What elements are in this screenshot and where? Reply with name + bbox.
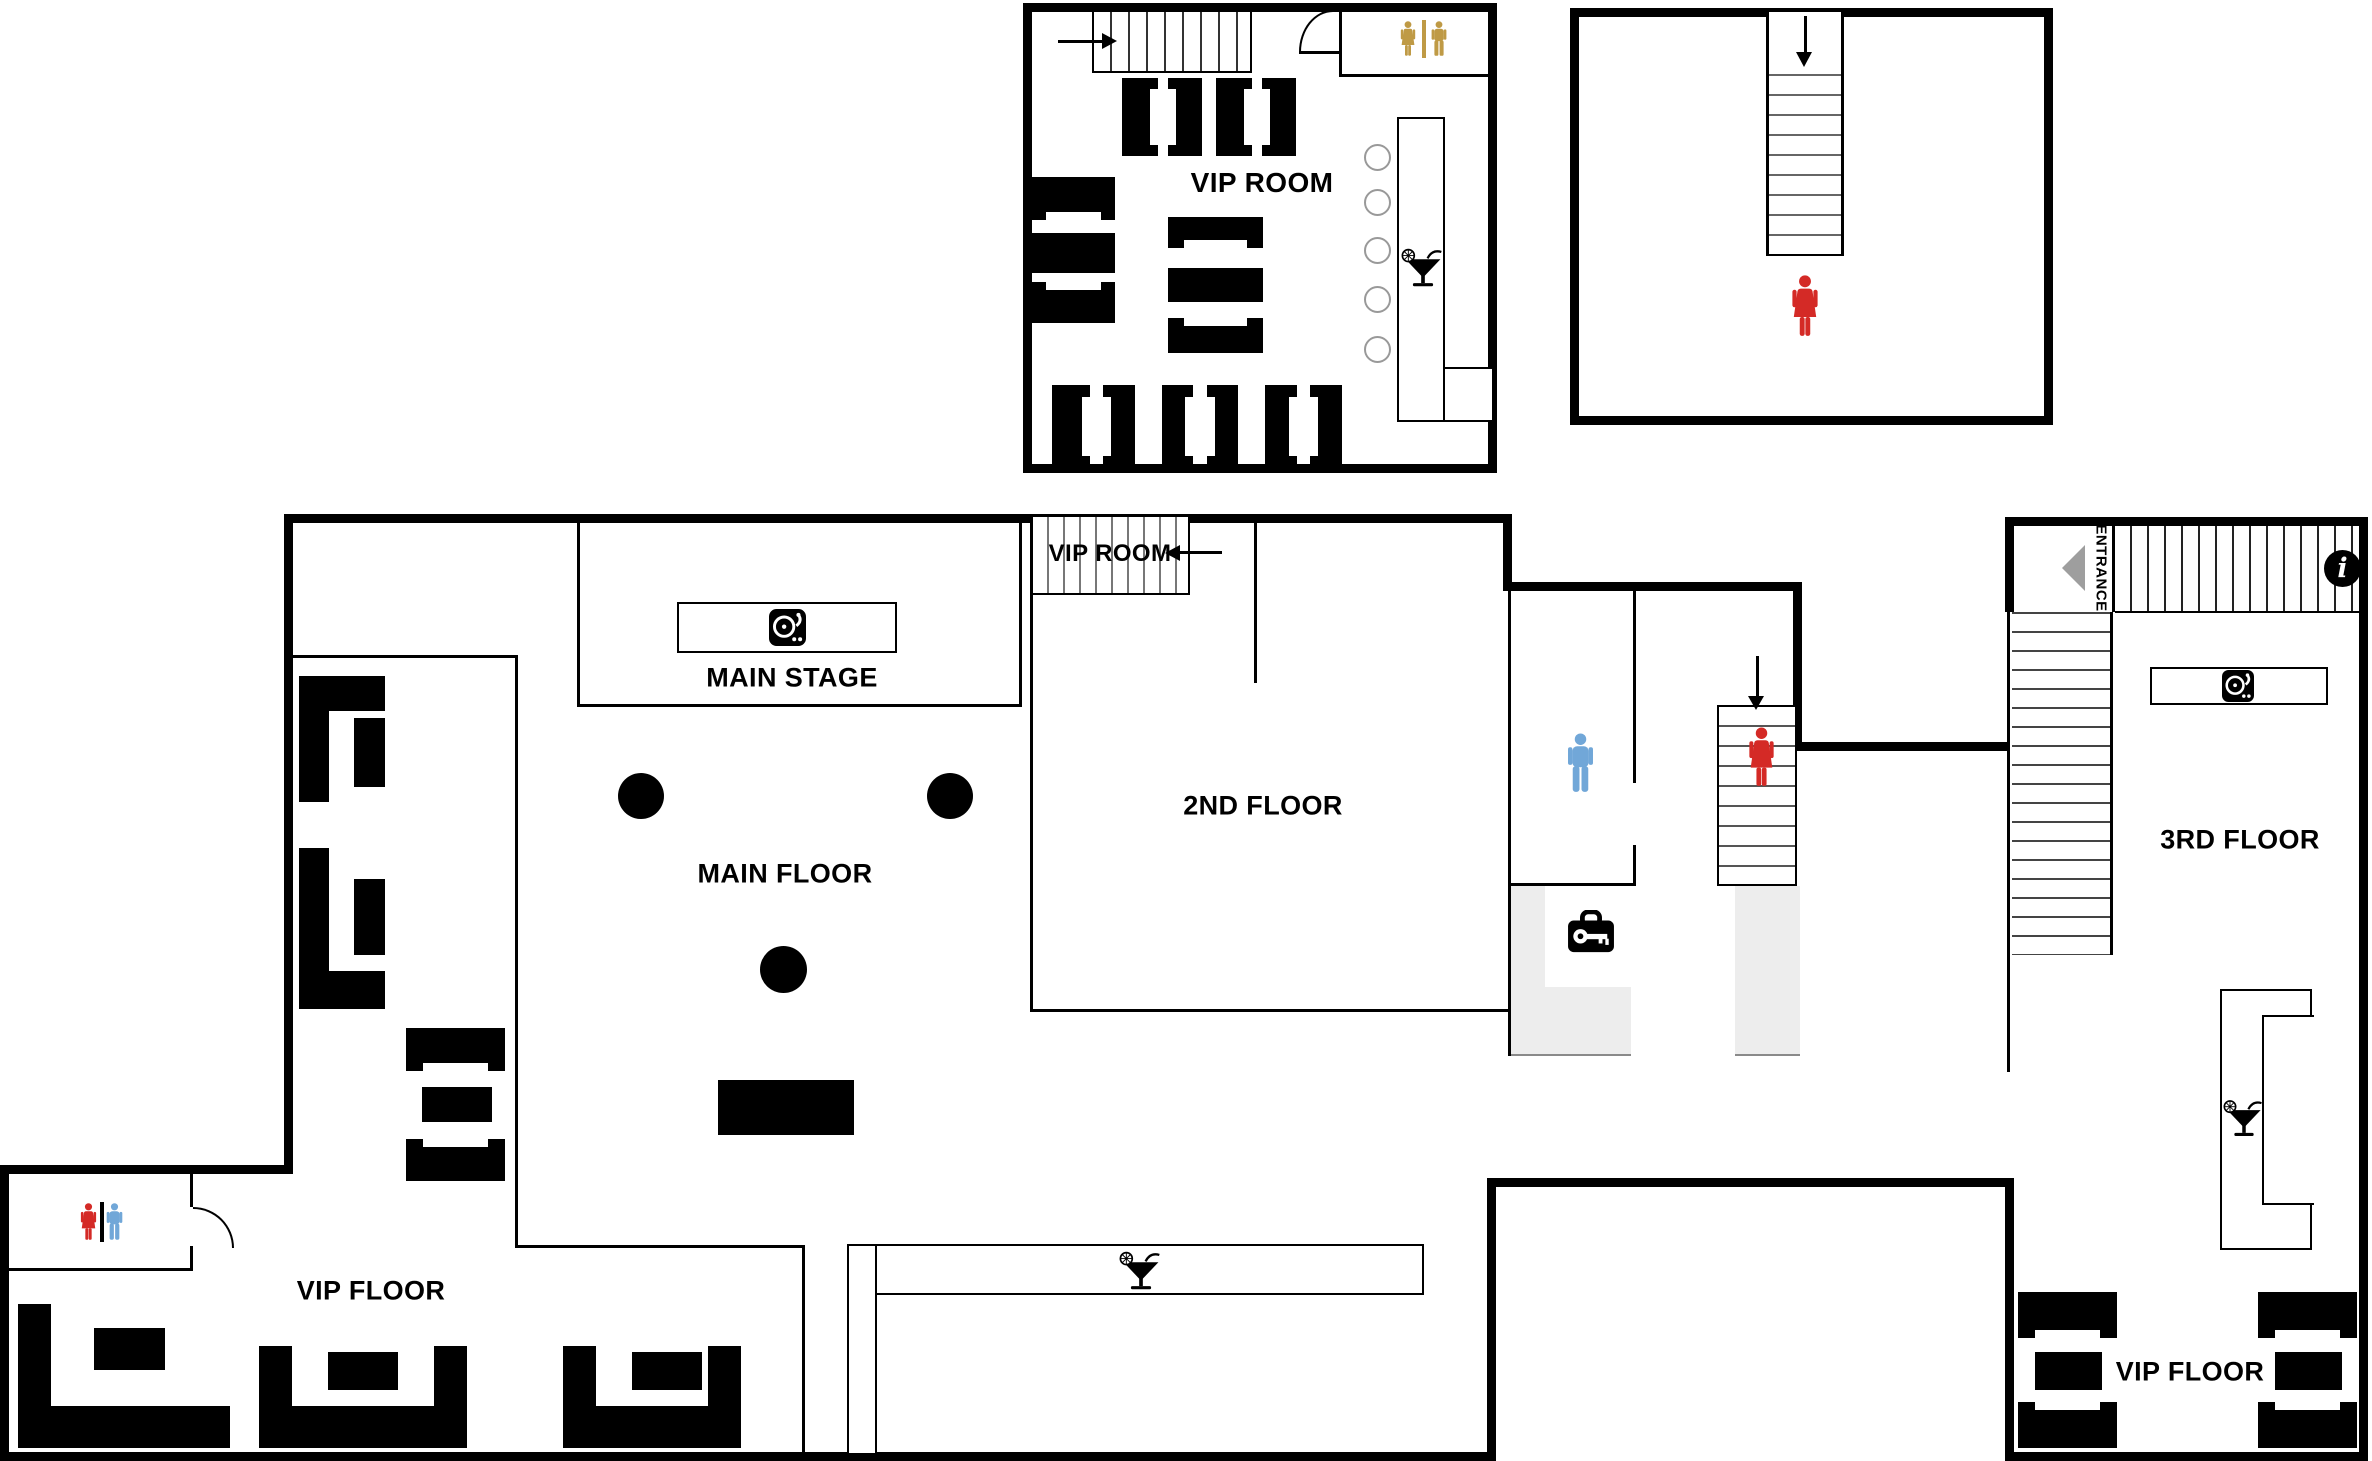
wall xyxy=(1030,1009,1511,1012)
couch xyxy=(259,1406,467,1448)
door-arc xyxy=(193,1207,234,1248)
wall xyxy=(1633,591,1636,783)
wall xyxy=(1030,523,1033,1012)
table xyxy=(354,879,385,955)
bar-counter-foot xyxy=(1443,367,1494,422)
vip-floor-left-label: VIP FLOOR xyxy=(297,1276,446,1307)
women-restroom-icon xyxy=(1748,727,1775,788)
martini-icon xyxy=(1119,1250,1163,1291)
corridor-edge xyxy=(1735,1054,1800,1056)
table xyxy=(328,1352,398,1390)
second-floor-label: 2ND FLOOR xyxy=(1183,791,1343,822)
couch xyxy=(2258,1292,2357,1338)
table xyxy=(1168,268,1263,302)
round-table xyxy=(618,773,664,819)
wall xyxy=(515,655,518,1248)
couch xyxy=(1052,385,1090,468)
corridor xyxy=(1735,886,1800,1056)
table xyxy=(2035,1352,2102,1390)
turntable-icon xyxy=(769,609,806,646)
couch xyxy=(2018,1292,2117,1338)
wall xyxy=(2007,607,2010,1072)
couch xyxy=(1262,78,1296,156)
entrance-arrow-icon xyxy=(2062,545,2085,591)
restroom-divider xyxy=(100,1202,104,1242)
table xyxy=(632,1352,702,1390)
entrance-label: ENTRANCE xyxy=(2093,524,2110,611)
bar-notch xyxy=(2262,1015,2314,1205)
couch xyxy=(1207,385,1238,468)
restroom-divider xyxy=(1422,20,1426,58)
couch xyxy=(1032,282,1115,323)
vip-room-upper-label: VIP ROOM xyxy=(1191,167,1334,199)
bar-stool xyxy=(1364,144,1391,171)
arrow-right-line xyxy=(1058,40,1104,43)
vip-floor-right-label: VIP FLOOR xyxy=(2116,1357,2265,1388)
couch xyxy=(406,1139,505,1181)
couch xyxy=(1265,385,1297,468)
wall xyxy=(8,1268,193,1271)
couch xyxy=(1032,177,1115,220)
table xyxy=(94,1328,165,1370)
couch xyxy=(1168,78,1202,156)
table xyxy=(1032,233,1115,273)
wall xyxy=(0,1452,1496,1461)
round-table xyxy=(927,773,973,819)
arrow-left-icon xyxy=(1165,545,1180,561)
wall xyxy=(1487,1178,2009,1187)
bar-stool xyxy=(1364,189,1391,216)
wall xyxy=(802,1245,805,1455)
wall xyxy=(0,1165,293,1174)
wall xyxy=(284,655,518,658)
info-icon: i xyxy=(2324,550,2361,587)
table xyxy=(2275,1352,2342,1390)
couch xyxy=(1103,385,1135,468)
couch xyxy=(1162,385,1193,468)
staircase-third-floor xyxy=(2012,612,2110,955)
wall xyxy=(1487,1178,1496,1461)
arrow-down-line xyxy=(1804,16,1807,52)
wall xyxy=(2359,517,2368,1461)
main-stage-label: MAIN STAGE xyxy=(706,663,878,694)
wall xyxy=(2005,1452,2368,1461)
wall xyxy=(190,1246,193,1270)
coat-check-key-icon xyxy=(1566,910,1616,954)
women-restroom-icon xyxy=(80,1203,97,1241)
staircase-steps xyxy=(1769,74,1841,254)
martini-icon xyxy=(1401,247,1445,288)
couch xyxy=(1168,318,1263,353)
men-restroom-icon xyxy=(1567,733,1594,794)
couch xyxy=(2018,1402,2117,1448)
third-floor-label: 3RD FLOOR xyxy=(2160,825,2320,856)
wall xyxy=(1503,582,1802,591)
arrow-down-line xyxy=(1756,656,1759,696)
table xyxy=(422,1087,492,1122)
table xyxy=(354,718,385,787)
bar-stool xyxy=(1364,286,1391,313)
vip-room-stairs-label: VIP ROOM xyxy=(1049,540,1172,568)
bar-stool xyxy=(1364,336,1391,363)
arrow-right-icon xyxy=(1102,33,1117,49)
nightclub-floor-plan: VIP ROOM xyxy=(0,0,2372,1461)
wall xyxy=(1254,523,1257,683)
door-leaf xyxy=(1299,51,1340,54)
restroom-partition-vertical xyxy=(1339,10,1342,76)
wall xyxy=(1793,742,2009,751)
round-table xyxy=(760,946,807,993)
couch xyxy=(563,1406,741,1448)
wall xyxy=(284,514,293,1174)
wall xyxy=(0,1165,9,1461)
couch xyxy=(406,1028,505,1071)
staircase-entrance xyxy=(2115,526,2359,613)
arrow-left-line xyxy=(1180,551,1222,554)
platform xyxy=(718,1080,854,1135)
couch xyxy=(1310,385,1342,468)
restroom-man-icon xyxy=(1431,21,1447,57)
wall xyxy=(2110,612,2113,955)
corridor xyxy=(1511,987,1631,1056)
couch xyxy=(2258,1402,2357,1448)
wall xyxy=(1503,514,1512,591)
couch xyxy=(1168,217,1263,248)
arrow-down-icon xyxy=(1748,696,1764,710)
main-floor-label: MAIN FLOOR xyxy=(698,859,873,890)
couch xyxy=(299,676,329,802)
couch xyxy=(299,971,385,1009)
couch xyxy=(18,1406,230,1448)
wall xyxy=(2005,517,2014,612)
restroom-woman-icon xyxy=(1400,21,1416,57)
bar-stool xyxy=(1364,237,1391,264)
corridor-edge xyxy=(1511,1054,1631,1056)
couch xyxy=(1122,78,1158,156)
restroom-partition-horizontal xyxy=(1339,74,1492,77)
martini-icon xyxy=(2223,1098,2265,1138)
women-restroom-icon xyxy=(1791,275,1819,338)
wall xyxy=(2005,1178,2014,1460)
wall xyxy=(190,1174,193,1207)
bar-counter-main-leg xyxy=(847,1244,877,1455)
wall xyxy=(515,1245,805,1248)
arrow-down-icon xyxy=(1796,52,1812,67)
wall xyxy=(1633,845,1636,886)
turntable-icon xyxy=(2222,670,2254,702)
couch xyxy=(1216,78,1252,156)
wall xyxy=(2005,517,2368,526)
men-restroom-icon xyxy=(106,1203,123,1241)
